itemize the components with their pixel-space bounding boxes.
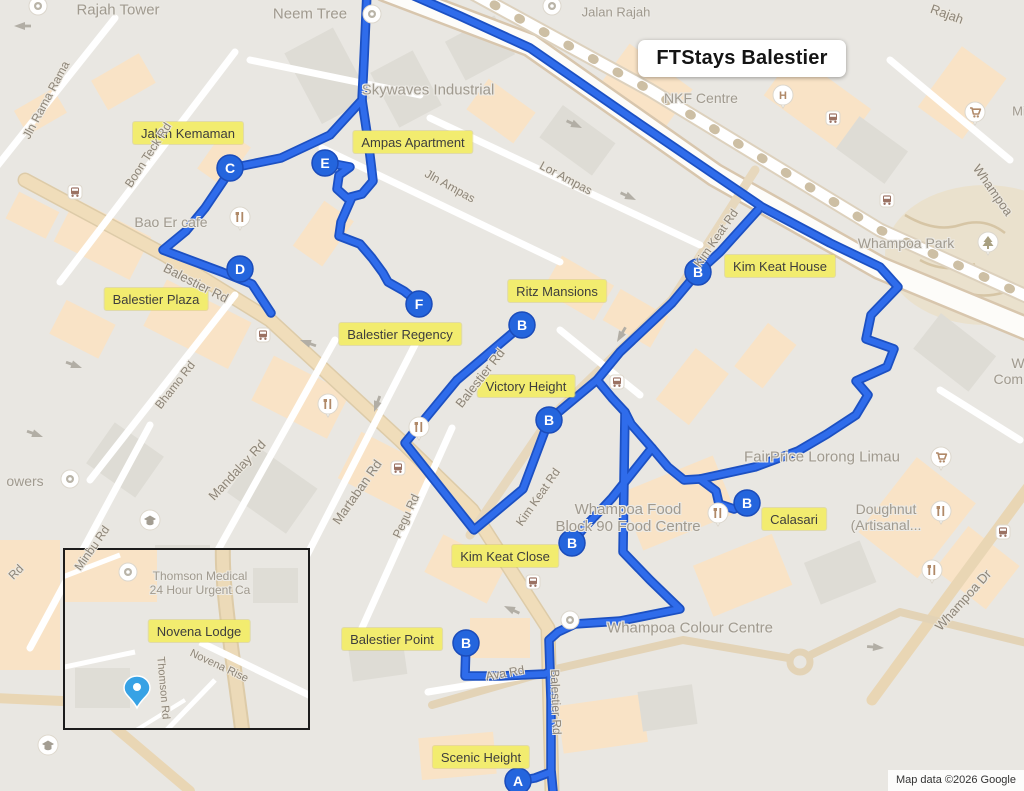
svg-text:H: H	[779, 90, 787, 102]
bus-icon[interactable]	[526, 575, 540, 589]
bus-icon[interactable]	[996, 525, 1010, 539]
map-attribution: Map data ©2026 Google	[888, 770, 1024, 791]
bus-icon[interactable]	[880, 193, 894, 207]
bus-icon[interactable]	[826, 111, 840, 125]
generic-icon[interactable]	[61, 470, 79, 488]
restaurant-icon[interactable]	[230, 207, 250, 230]
cart-icon[interactable]	[931, 447, 951, 470]
generic-icon[interactable]	[29, 0, 47, 15]
bus-icon[interactable]	[68, 185, 82, 199]
bus-icon[interactable]	[256, 328, 270, 342]
map-title: FTStays Balestier	[638, 40, 846, 77]
generic-icon[interactable]	[119, 563, 137, 581]
bus-icon[interactable]	[391, 461, 405, 475]
restaurant-icon[interactable]	[922, 560, 942, 583]
restaurant-icon[interactable]	[708, 503, 728, 526]
generic-icon[interactable]	[561, 611, 579, 629]
restaurant-icon[interactable]	[409, 417, 429, 440]
park-icon[interactable]	[978, 232, 998, 255]
gradcap-icon[interactable]	[38, 735, 58, 755]
generic-icon[interactable]	[543, 0, 561, 15]
restaurant-icon[interactable]	[318, 394, 338, 417]
generic-icon[interactable]	[363, 5, 381, 23]
map-canvas[interactable]: ABBBBBBCDEF H Jalan KemamanAmpas Apartme…	[0, 0, 1024, 791]
poi-icons-layer: H	[0, 0, 1024, 791]
restaurant-icon[interactable]	[931, 501, 951, 524]
gradcap-icon[interactable]	[140, 510, 160, 530]
cart-icon[interactable]	[965, 102, 985, 125]
bus-icon[interactable]	[610, 375, 624, 389]
hospital-icon[interactable]: H	[773, 85, 793, 108]
location-pin-icon[interactable]	[124, 676, 150, 708]
